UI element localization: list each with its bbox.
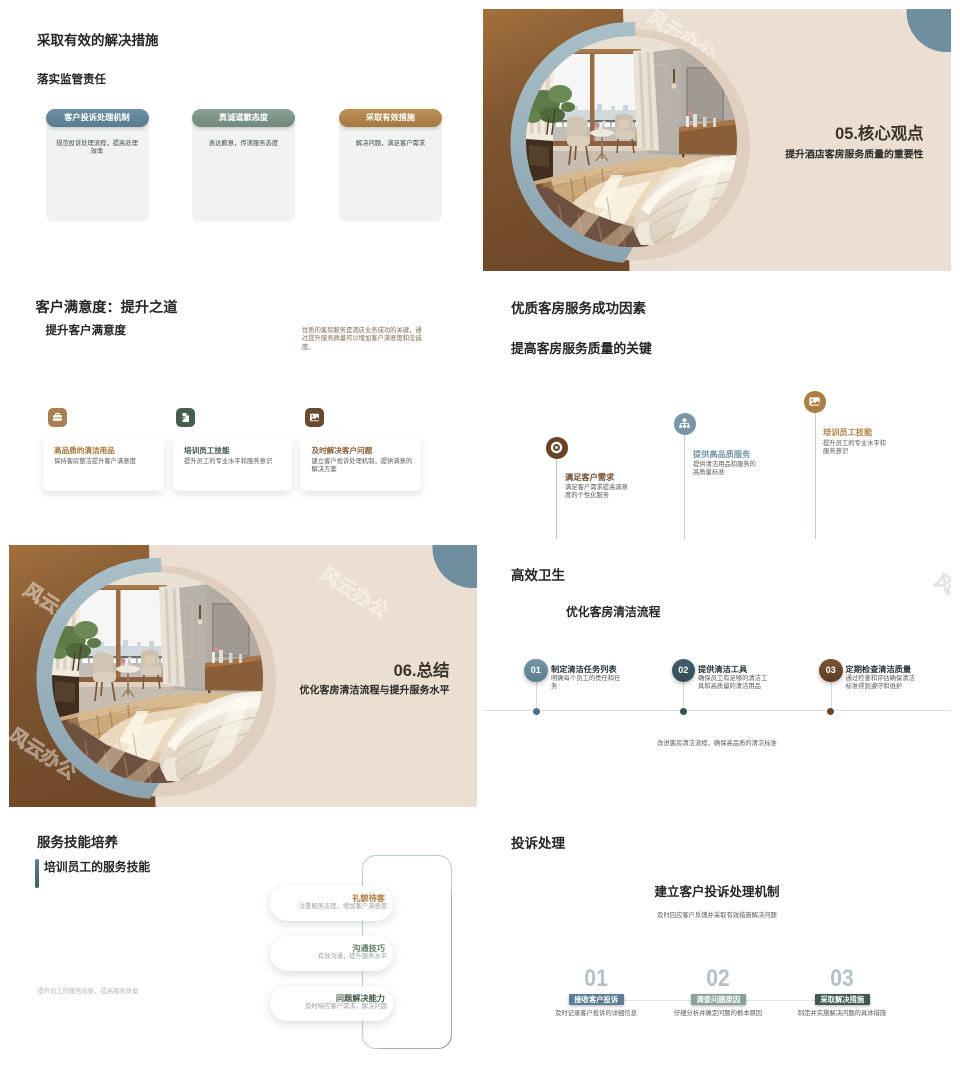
svg-text:提升酒店客房服务质量的重要性: 提升酒店客房服务质量的重要性 — [785, 147, 923, 160]
svg-text:风云办公: 风云办公 — [316, 562, 392, 623]
svg-text:06.总结: 06.总结 — [394, 660, 450, 680]
svg-text:风云办公: 风云办公 — [930, 569, 951, 630]
svg-text:05.核心观点: 05.核心观点 — [835, 124, 924, 143]
svg-text:优化客房清洁流程与提升服务水平: 优化客房清洁流程与提升服务水平 — [300, 684, 450, 697]
